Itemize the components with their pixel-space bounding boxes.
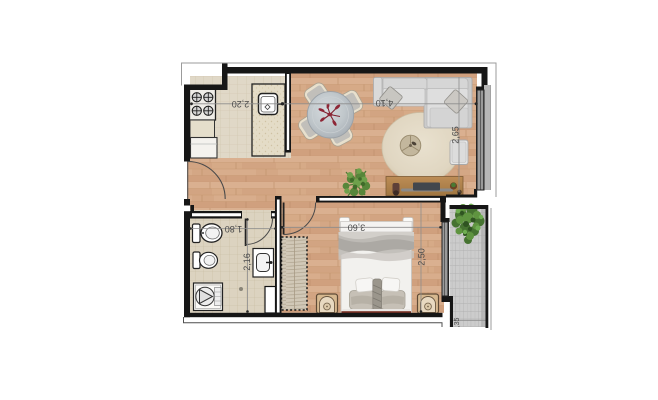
svg-text:,35: ,35	[454, 318, 461, 328]
svg-text:2,65: 2,65	[451, 126, 461, 144]
svg-text:1,80: 1,80	[225, 224, 243, 234]
svg-text:2,16: 2,16	[242, 253, 252, 271]
svg-text:2,50: 2,50	[416, 248, 426, 266]
svg-text:4,10: 4,10	[376, 98, 394, 108]
svg-text:3,60: 3,60	[348, 223, 366, 233]
svg-text:2,20: 2,20	[232, 99, 250, 109]
